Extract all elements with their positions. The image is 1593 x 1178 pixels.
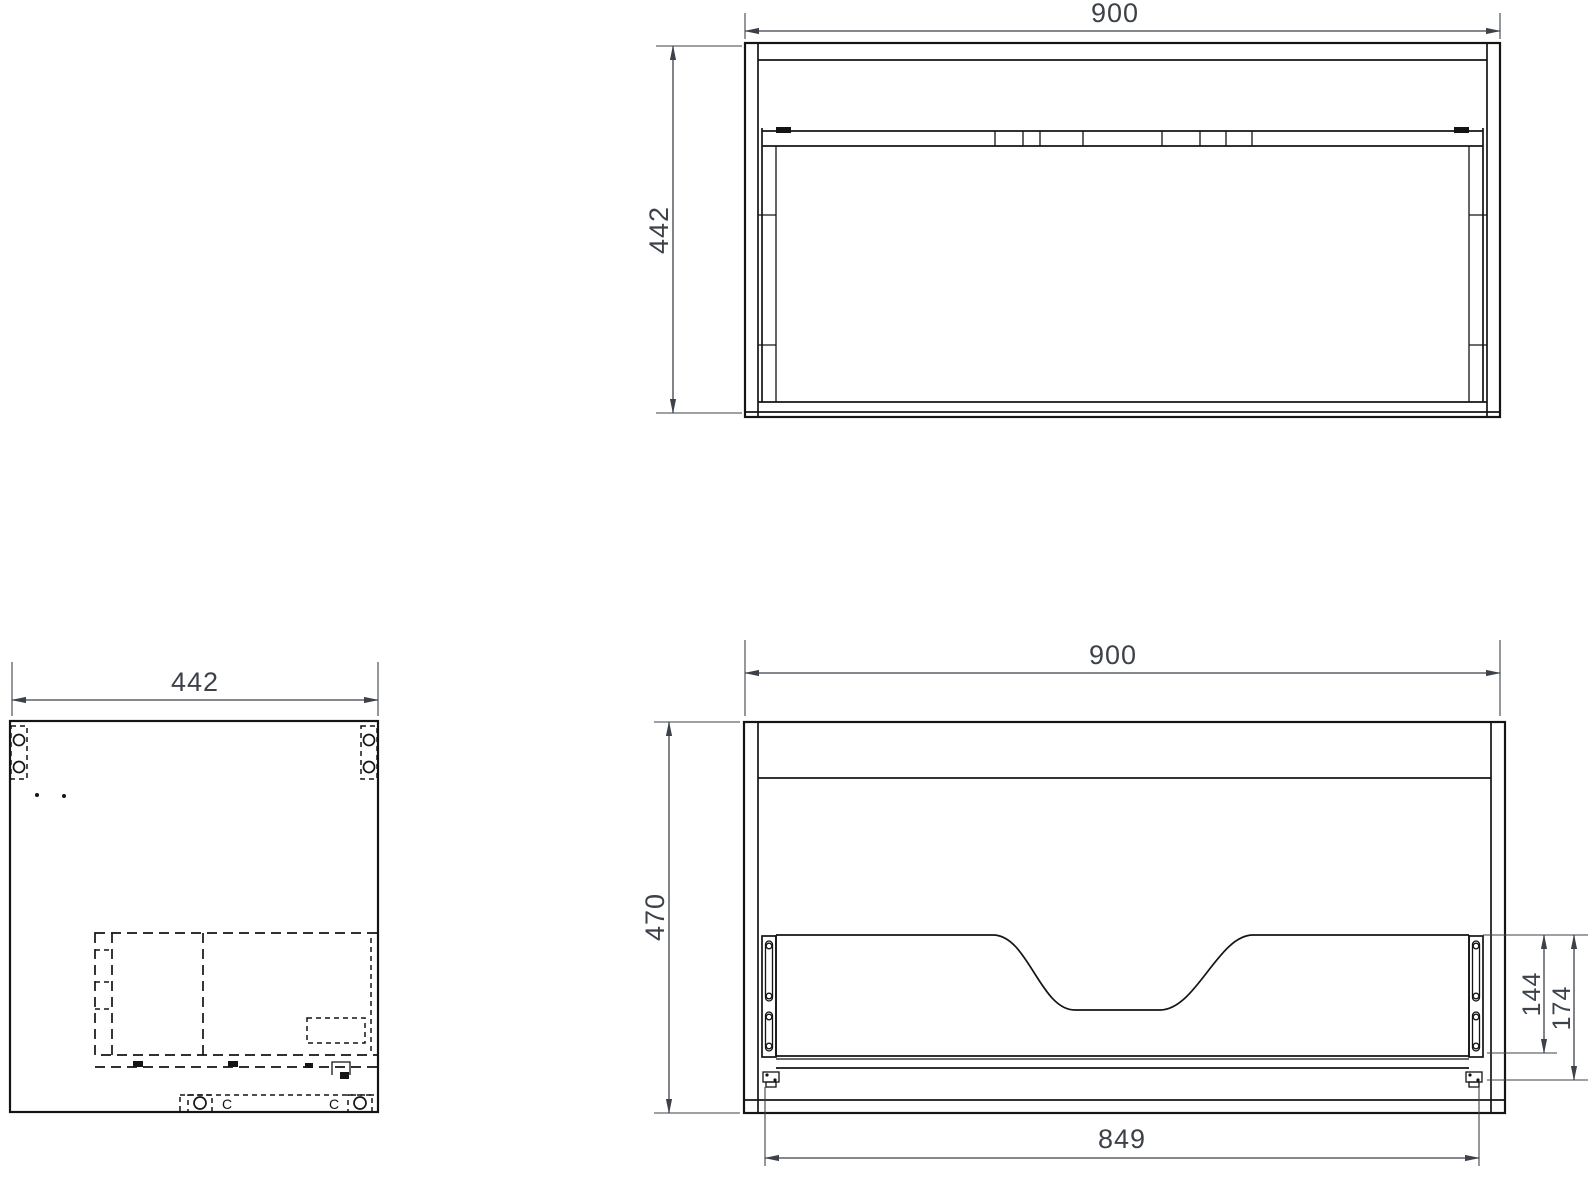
front-view-width-label: 900: [1089, 640, 1137, 670]
drawer-back-panel: [776, 935, 1469, 1068]
front-view-width-dimension: 900: [745, 640, 1500, 716]
drawing-canvas: 900 442: [0, 0, 1593, 1178]
side-view: C C 442: [10, 662, 378, 1112]
drawer-slide-left: [762, 936, 776, 1057]
runner-strip: C C: [180, 1095, 378, 1112]
front-view: 900 470 849 144 174: [640, 640, 1588, 1166]
drawer-rail-adjusters: [995, 131, 1252, 146]
drawer-hardware-box: [307, 1018, 365, 1043]
technical-drawing-page: 900 442: [0, 0, 1593, 1178]
top-view: 900 442: [644, 0, 1500, 417]
slide-bottom-bracket-right: [1466, 1072, 1482, 1087]
side-view-depth-dimension: 442: [12, 662, 378, 716]
top-view-carcass: [745, 43, 1500, 417]
drawer-slide-right: [1469, 936, 1483, 1057]
hanging-bracket-right: [361, 726, 377, 779]
top-view-width-label: 900: [1091, 0, 1139, 28]
front-fixing-clip-left: [776, 127, 791, 133]
side-view-depth-label: 442: [171, 667, 219, 697]
top-view-depth-dimension: 442: [644, 46, 742, 413]
slide-hidden-lines: [95, 1061, 378, 1079]
hanging-bracket-left: [11, 726, 27, 779]
slide-bottom-bracket-left: [763, 1072, 779, 1087]
front-view-height-dimension: 470: [640, 722, 740, 1113]
side-panel-outline: [10, 721, 378, 1112]
top-view-drawer-box: [758, 127, 1487, 402]
cam-label-right: C: [329, 1096, 339, 1112]
side-wall-notches: [758, 215, 1487, 345]
front-fixing-clip-right: [1454, 127, 1469, 133]
shelf-pin-holes: [35, 793, 66, 798]
drawer-overall-height-label: 174: [1548, 986, 1576, 1031]
drawer-back-height-label: 144: [1518, 972, 1546, 1017]
drawer-hidden-outline: [95, 933, 378, 1055]
front-view-height-label: 470: [640, 893, 670, 941]
runner-width-label: 849: [1098, 1124, 1146, 1154]
top-view-depth-label: 442: [644, 206, 674, 254]
front-view-carcass: [744, 722, 1505, 1113]
runner-width-dimension: 849: [765, 1087, 1479, 1166]
cam-label-left: C: [222, 1096, 232, 1112]
top-view-width-dimension: 900: [745, 0, 1500, 39]
drawer-height-dimensions: 144 174: [1483, 935, 1588, 1080]
